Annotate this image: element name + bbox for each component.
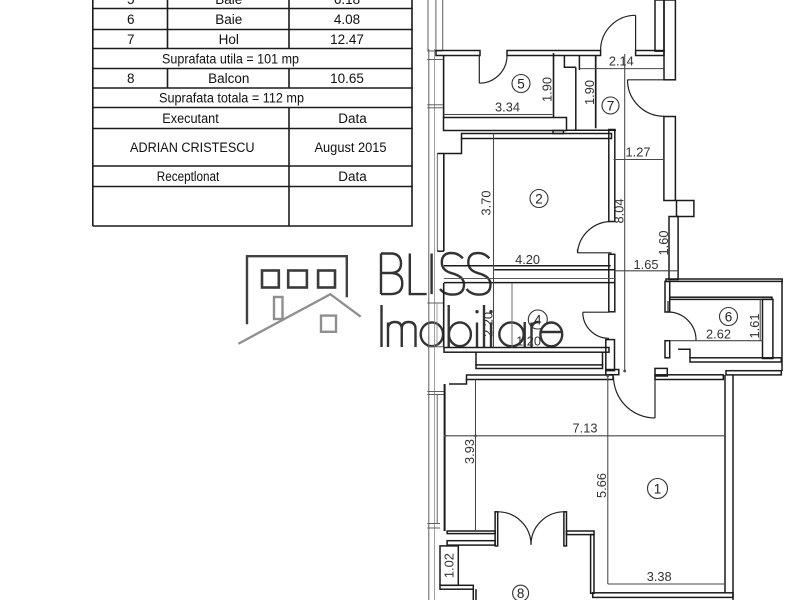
svg-text:Hol: Hol <box>219 32 239 47</box>
svg-text:6: 6 <box>127 12 135 27</box>
svg-text:6.18: 6.18 <box>334 0 360 7</box>
svg-text:4.20: 4.20 <box>515 252 540 267</box>
svg-text:8: 8 <box>127 71 135 86</box>
svg-text:1.27: 1.27 <box>626 144 651 159</box>
svg-text:1.20: 1.20 <box>516 333 541 348</box>
svg-text:1.90: 1.90 <box>582 80 597 105</box>
svg-text:2: 2 <box>535 191 543 206</box>
svg-text:August 2015: August 2015 <box>315 140 387 155</box>
svg-text:Balcon: Balcon <box>208 71 249 86</box>
svg-text:7.13: 7.13 <box>573 420 598 435</box>
svg-text:2.14: 2.14 <box>609 54 634 69</box>
svg-text:Baie: Baie <box>215 0 242 7</box>
svg-text:1.02: 1.02 <box>442 553 457 578</box>
svg-text:4.08: 4.08 <box>334 12 360 27</box>
svg-text:ADRIAN CRISTESCU: ADRIAN CRISTESCU <box>130 140 255 155</box>
svg-text:5: 5 <box>517 76 525 91</box>
svg-text:1: 1 <box>654 481 662 496</box>
svg-text:7: 7 <box>607 98 615 113</box>
svg-text:Suprafata totala = 112 mp: Suprafata totala = 112 mp <box>159 91 304 106</box>
svg-text:10.65: 10.65 <box>330 71 364 86</box>
svg-text:4: 4 <box>534 312 542 327</box>
svg-text:Receptlonat: Receptlonat <box>157 169 220 184</box>
svg-text:2.62: 2.62 <box>706 327 731 342</box>
svg-text:1.61: 1.61 <box>747 314 762 339</box>
svg-text:Baie: Baie <box>215 12 242 27</box>
svg-text:3.34: 3.34 <box>495 100 520 115</box>
svg-text:5: 5 <box>127 0 135 7</box>
svg-text:Data: Data <box>338 111 367 126</box>
svg-text:3.70: 3.70 <box>478 191 493 216</box>
svg-text:Data: Data <box>338 169 367 184</box>
svg-text:2.20: 2.20 <box>481 312 496 337</box>
svg-text:1.65: 1.65 <box>634 257 659 272</box>
svg-text:Suprafata utila = 101 mp: Suprafata utila = 101 mp <box>162 51 299 66</box>
svg-text:12.47: 12.47 <box>330 32 364 47</box>
svg-text:Executant: Executant <box>162 111 219 126</box>
svg-text:3.38: 3.38 <box>647 569 672 584</box>
svg-text:3.93: 3.93 <box>462 439 477 464</box>
svg-text:8.04: 8.04 <box>611 199 626 224</box>
svg-text:8: 8 <box>517 586 525 600</box>
svg-text:1.60: 1.60 <box>656 231 671 256</box>
svg-text:6: 6 <box>725 309 733 324</box>
svg-text:1.90: 1.90 <box>539 77 554 102</box>
svg-text:5.66: 5.66 <box>594 473 609 498</box>
svg-text:7: 7 <box>127 32 135 47</box>
